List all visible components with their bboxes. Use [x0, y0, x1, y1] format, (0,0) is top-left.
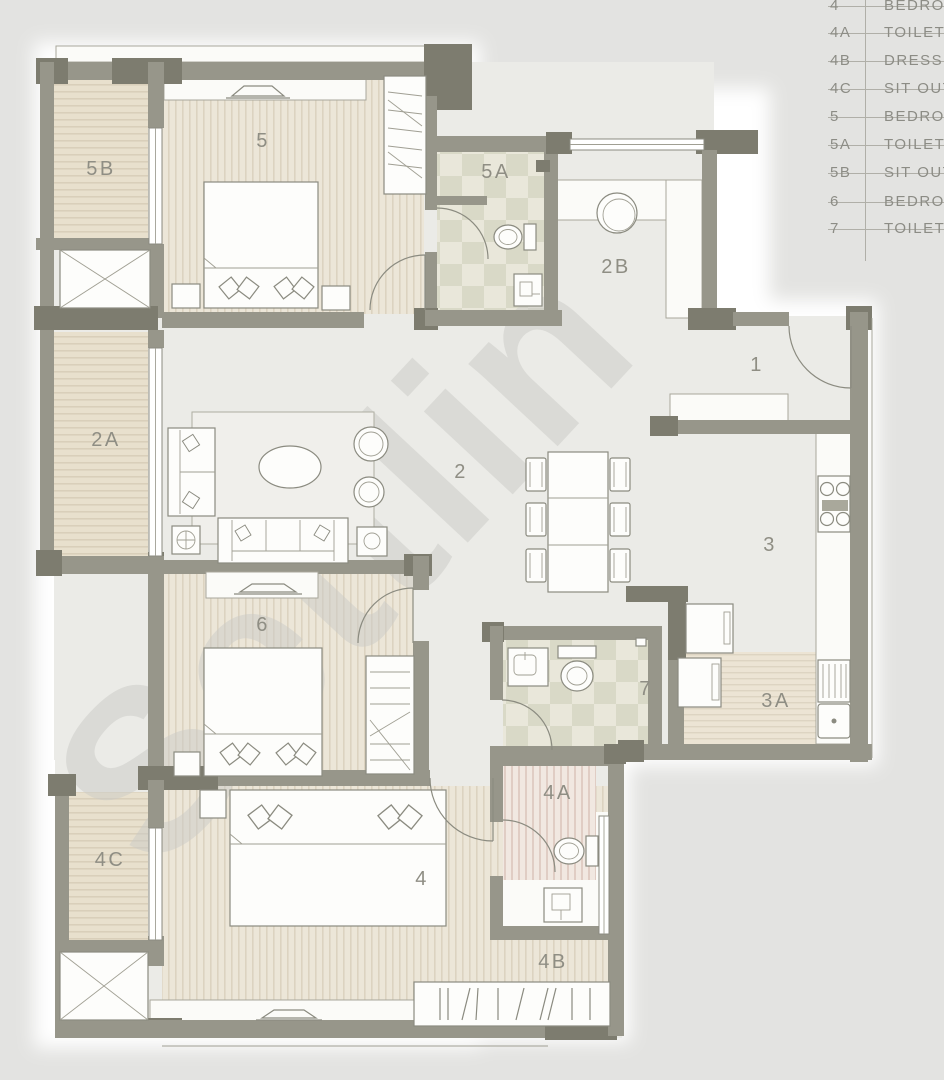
- legend-row: 4BEDROOM: [822, 0, 944, 17]
- legend-row: 4BDRESS: [822, 50, 944, 72]
- dress-4b-wardrobe: [414, 982, 610, 1026]
- duct-shaft-top: [60, 250, 150, 308]
- room-label-1: 1: [750, 354, 764, 376]
- side-table: [172, 284, 200, 308]
- toilet-icon: [494, 224, 536, 250]
- sink-icon: [818, 660, 850, 738]
- legend-row: 6BEDROOM: [822, 191, 944, 213]
- legend-label: TOILET: [884, 22, 944, 44]
- legend-code: 5: [830, 106, 840, 128]
- legend-code: 4C: [830, 78, 852, 100]
- legend-label: BEDROOM: [884, 0, 944, 17]
- living-room-furniture: [168, 412, 388, 563]
- legend-code: 5B: [830, 162, 851, 184]
- room-label-2: 2: [454, 461, 468, 483]
- side-table: [174, 752, 200, 776]
- refrigerator-icon: [686, 604, 733, 653]
- entry-shoe-cabinet: [670, 394, 788, 422]
- floor-plan-svg: Settlin: [0, 0, 944, 1080]
- legend-row: 5BSIT OUT: [822, 162, 944, 184]
- room-label-4c: 4C: [95, 849, 126, 871]
- legend-code: 7: [830, 218, 840, 240]
- washing-machine-icon: [678, 658, 721, 707]
- side-table: [200, 790, 226, 818]
- duct-shaft-bottom: [60, 952, 148, 1020]
- toilet-icon: [558, 646, 596, 691]
- room-label-3: 3: [763, 534, 777, 556]
- legend-row: 4CSIT OUT: [822, 78, 944, 100]
- legend-label: SIT OUT: [884, 162, 944, 184]
- room-legend: 4BEDROOM 4ATOILET 4BDRESS 4CSIT OUT 5BED…: [822, 0, 944, 272]
- legend-row: 5ATOILET: [822, 134, 944, 156]
- sofa-two-seat: [168, 428, 215, 516]
- window-5b: [149, 128, 162, 244]
- room-label-4: 4: [415, 868, 429, 890]
- legend-code: 5A: [830, 134, 851, 156]
- window-2a: [149, 348, 162, 556]
- wardrobe-icon: [414, 982, 610, 1026]
- bedroom4-tv-unit: [150, 1000, 416, 1022]
- corner-table: [357, 527, 387, 556]
- wardrobe-icon: [384, 76, 426, 194]
- foyer-counter-side: [666, 180, 702, 318]
- legend-row: 7TOILET: [822, 218, 944, 240]
- bedroom5-tv-unit: [164, 78, 366, 100]
- geyser-icon: [514, 274, 542, 306]
- window-2b: [570, 139, 704, 150]
- room-label-7: 7: [639, 678, 653, 700]
- legend-code: 4A: [830, 22, 851, 44]
- corner-table: [172, 526, 200, 554]
- room-label-5a: 5A: [481, 161, 510, 183]
- room-label-4b: 4B: [538, 951, 567, 973]
- room-label-5: 5: [256, 130, 270, 152]
- wardrobe-icon: [366, 656, 414, 774]
- room-label-2a: 2A: [91, 429, 120, 451]
- legend-label: BEDROOM: [884, 191, 944, 213]
- legend-row: 4ATOILET: [822, 22, 944, 44]
- stove-icon: [818, 476, 850, 532]
- shower-icon: [636, 638, 646, 646]
- side-table: [322, 286, 350, 310]
- room-label-5b: 5B: [86, 158, 115, 180]
- foyer-2b-fixtures: [597, 193, 637, 233]
- coffee-table: [259, 446, 321, 488]
- window-4a: [599, 816, 609, 934]
- legend-label: SIT OUT: [884, 78, 944, 100]
- legend-label: DRESS: [884, 50, 943, 72]
- toilet-icon: [554, 836, 598, 866]
- legend-label: TOILET: [884, 218, 944, 240]
- wash-basin-icon: [544, 888, 582, 922]
- legend-label: TOILET: [884, 134, 944, 156]
- legend-label: BEDROOM: [884, 106, 944, 128]
- legend-row: 5BEDROOM: [822, 106, 944, 128]
- room-label-2b: 2B: [601, 256, 630, 278]
- dining-table: [548, 452, 608, 592]
- room-label-4a: 4A: [543, 782, 572, 804]
- accent-chair: [354, 477, 384, 507]
- window-4c: [149, 828, 162, 940]
- sofa-three-seat: [218, 518, 348, 563]
- room-label-3a: 3A: [761, 690, 790, 712]
- dining-set: [526, 452, 630, 592]
- room-label-6: 6: [256, 614, 270, 636]
- legend-code: 4: [830, 0, 840, 17]
- legend-code: 4B: [830, 50, 851, 72]
- wash-basin-icon: [508, 648, 548, 686]
- legend-code: 6: [830, 191, 840, 213]
- floor-plan-canvas: Settlin: [0, 0, 944, 1080]
